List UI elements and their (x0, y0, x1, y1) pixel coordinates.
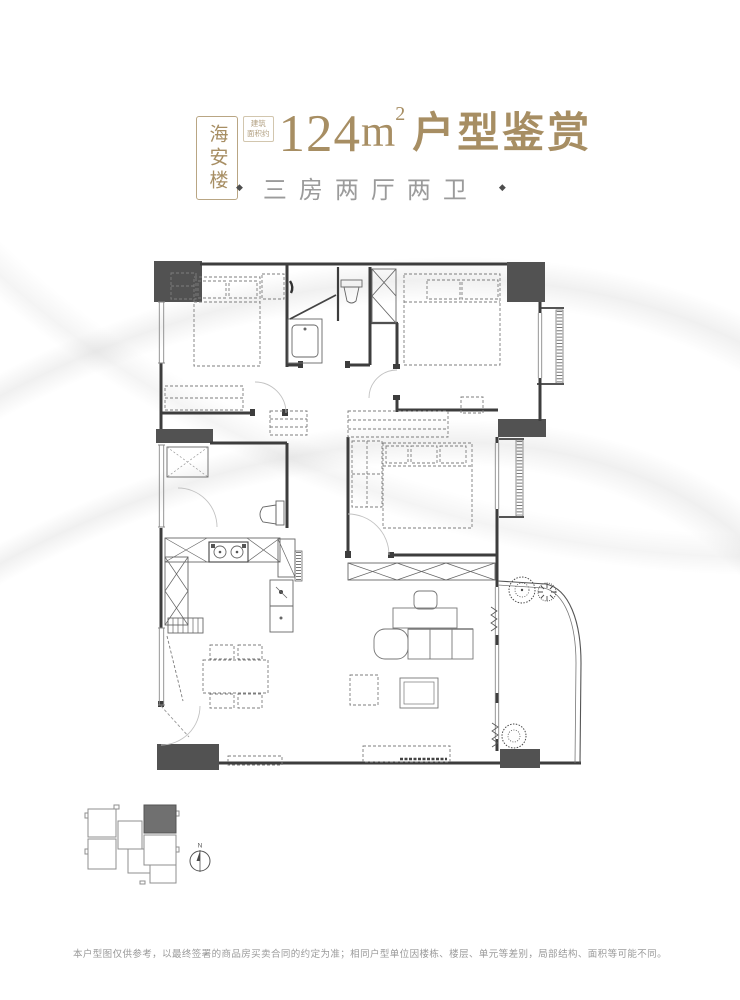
balcony-walls (499, 308, 564, 517)
living-dining-furniture (167, 591, 473, 765)
north-compass-icon: N (190, 843, 210, 873)
tree-icon (538, 583, 556, 601)
garden-balcony (491, 577, 581, 763)
master-bedroom-furniture (372, 269, 500, 413)
subtitle-text: 三房两厅两卫 (263, 170, 479, 205)
bedroom-middle-furniture (348, 411, 472, 528)
building-name-badge: 海安楼 (196, 116, 238, 200)
storage-band (348, 563, 495, 580)
area-value: 124 (279, 108, 362, 161)
highlighted-unit (144, 805, 176, 833)
page-title: 建筑 面积约 124 m2 户型鉴赏 (243, 108, 592, 161)
door-arcs (161, 370, 397, 745)
area-unit: m2 (361, 108, 405, 156)
diamond-ornament-right: ◆ (499, 182, 506, 193)
bathroom-main (288, 280, 362, 363)
subtitle: ◆ 三房两厅两卫 ◆ (236, 170, 506, 205)
area-note: 建筑 面积约 (243, 116, 274, 142)
title-text: 户型鉴赏 (412, 111, 592, 157)
key-plan: N (80, 797, 220, 892)
disclaimer-text: 本户型图仅供参考，以最终签署的商品房买卖合同的约定为准；相同户型单位因楼栋、楼层… (0, 946, 740, 960)
floor-plan (150, 255, 590, 805)
tree-icon (509, 577, 535, 603)
interior-walls (161, 264, 498, 555)
diamond-ornament-left: ◆ (236, 182, 243, 193)
tree-icon (502, 724, 526, 748)
north-label: N (198, 843, 203, 850)
poster-page: 海安楼 建筑 面积约 124 m2 户型鉴赏 ◆ 三房两厅两卫 ◆ (0, 0, 740, 1000)
bathroom-second (167, 447, 284, 525)
